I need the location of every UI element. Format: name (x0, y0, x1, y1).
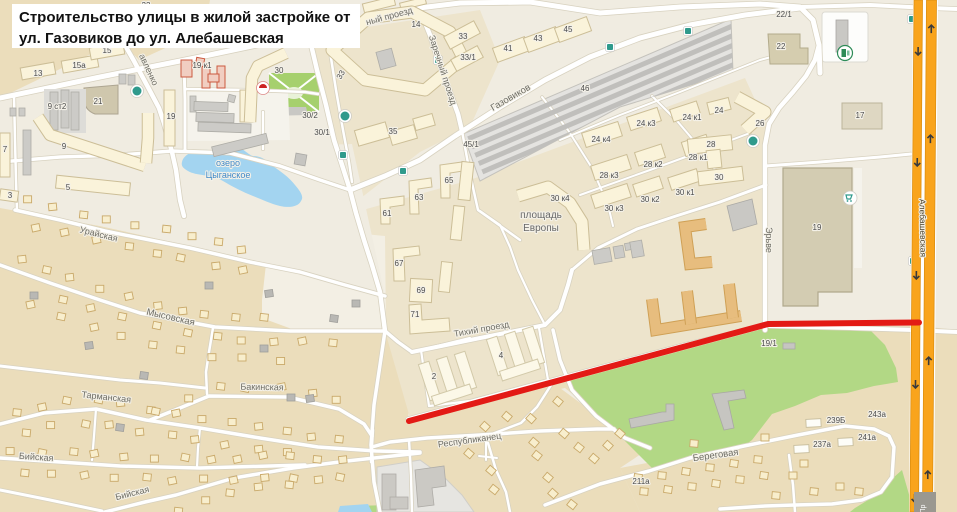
svg-text:69: 69 (417, 286, 426, 295)
svg-text:площадь: площадь (520, 210, 562, 221)
svg-text:Строительство улицы в жилой за: Строительство улицы в жилой застройке от (19, 9, 350, 26)
svg-text:61: 61 (383, 209, 392, 218)
svg-text:7: 7 (3, 145, 8, 154)
svg-text:22: 22 (777, 42, 786, 51)
svg-text:Алебашевская: Алебашевская (917, 199, 928, 258)
svg-text:3: 3 (8, 191, 13, 200)
svg-text:24 к4: 24 к4 (591, 135, 611, 144)
svg-text:28: 28 (707, 140, 716, 149)
svg-text:Эрьве: Эрьве (764, 227, 774, 253)
svg-text:19 к1: 19 к1 (192, 61, 212, 70)
svg-text:241а: 241а (858, 433, 876, 442)
svg-text:63: 63 (415, 193, 424, 202)
svg-text:13: 13 (34, 69, 43, 78)
svg-text:43: 43 (534, 34, 543, 43)
svg-text:24: 24 (715, 106, 724, 115)
svg-text:30 к4: 30 к4 (550, 194, 570, 203)
svg-text:24 к3: 24 к3 (636, 119, 656, 128)
svg-text:9: 9 (62, 142, 67, 151)
svg-text:2: 2 (432, 372, 437, 381)
svg-text:30/1: 30/1 (314, 128, 330, 137)
svg-text:24 к1: 24 к1 (682, 113, 702, 122)
svg-text:22/1: 22/1 (776, 10, 792, 19)
svg-text:Пр: Пр (920, 504, 927, 512)
svg-text:239Б: 239Б (827, 416, 846, 425)
svg-text:237а: 237а (813, 440, 831, 449)
svg-text:46: 46 (581, 84, 590, 93)
svg-text:15а: 15а (72, 61, 86, 70)
svg-text:19/1: 19/1 (761, 339, 777, 348)
svg-text:35: 35 (389, 127, 398, 136)
svg-text:30 к1: 30 к1 (675, 188, 695, 197)
svg-text:26: 26 (756, 119, 765, 128)
svg-text:19: 19 (813, 223, 822, 232)
svg-text:30: 30 (715, 173, 724, 182)
svg-text:33/1: 33/1 (460, 53, 476, 62)
svg-text:озеро: озеро (216, 158, 240, 168)
svg-text:30/2: 30/2 (302, 111, 318, 120)
svg-text:41: 41 (504, 44, 513, 53)
svg-text:14: 14 (412, 20, 421, 29)
svg-text:30 к2: 30 к2 (640, 195, 660, 204)
svg-text:30: 30 (275, 66, 284, 75)
svg-text:65: 65 (445, 176, 454, 185)
svg-text:33: 33 (459, 32, 468, 41)
svg-text:28 к2: 28 к2 (643, 160, 663, 169)
svg-text:28 к3: 28 к3 (599, 171, 619, 180)
svg-text:Европы: Европы (523, 223, 559, 234)
svg-text:45: 45 (564, 25, 573, 34)
svg-text:71: 71 (411, 310, 420, 319)
svg-text:5: 5 (66, 183, 71, 192)
svg-text:21: 21 (94, 97, 103, 106)
svg-text:67: 67 (395, 259, 404, 268)
svg-text:30 к3: 30 к3 (604, 204, 624, 213)
svg-text:4: 4 (499, 351, 504, 360)
svg-text:17: 17 (856, 111, 865, 120)
svg-text:9 ст2: 9 ст2 (48, 102, 67, 111)
svg-text:Цыганское: Цыганское (206, 170, 251, 180)
svg-text:Бакинская: Бакинская (240, 382, 284, 393)
svg-text:ул. Газовиков до ул. Алебашевс: ул. Газовиков до ул. Алебашевская (19, 30, 284, 47)
svg-text:243а: 243а (868, 410, 886, 419)
svg-text:45/1: 45/1 (463, 140, 479, 149)
svg-text:211а: 211а (632, 477, 650, 486)
svg-text:28 к1: 28 к1 (688, 153, 708, 162)
svg-text:19: 19 (167, 112, 176, 121)
